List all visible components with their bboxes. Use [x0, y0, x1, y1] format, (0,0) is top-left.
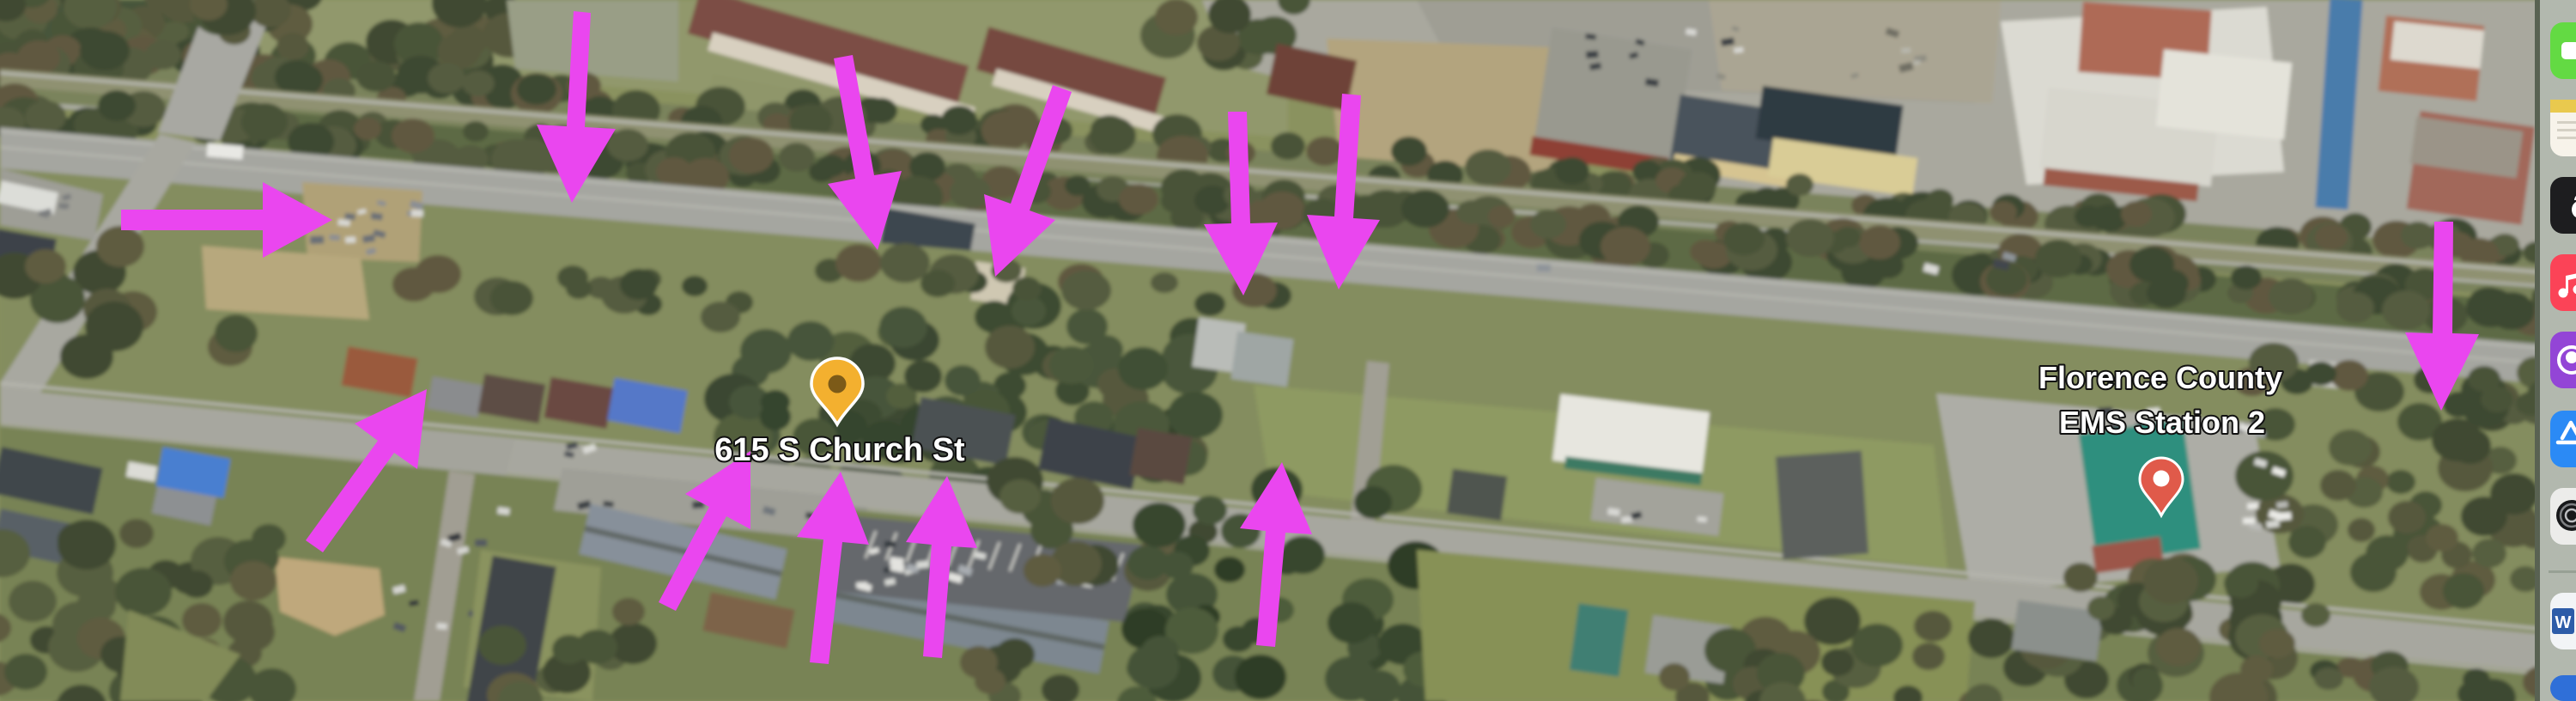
svg-text:Florence County: Florence County [2038, 360, 2282, 395]
svg-text:W: W [2555, 613, 2572, 632]
svg-text:EMS Station 2: EMS Station 2 [2059, 405, 2265, 440]
svg-text:615 S Church St: 615 S Church St [714, 432, 965, 468]
